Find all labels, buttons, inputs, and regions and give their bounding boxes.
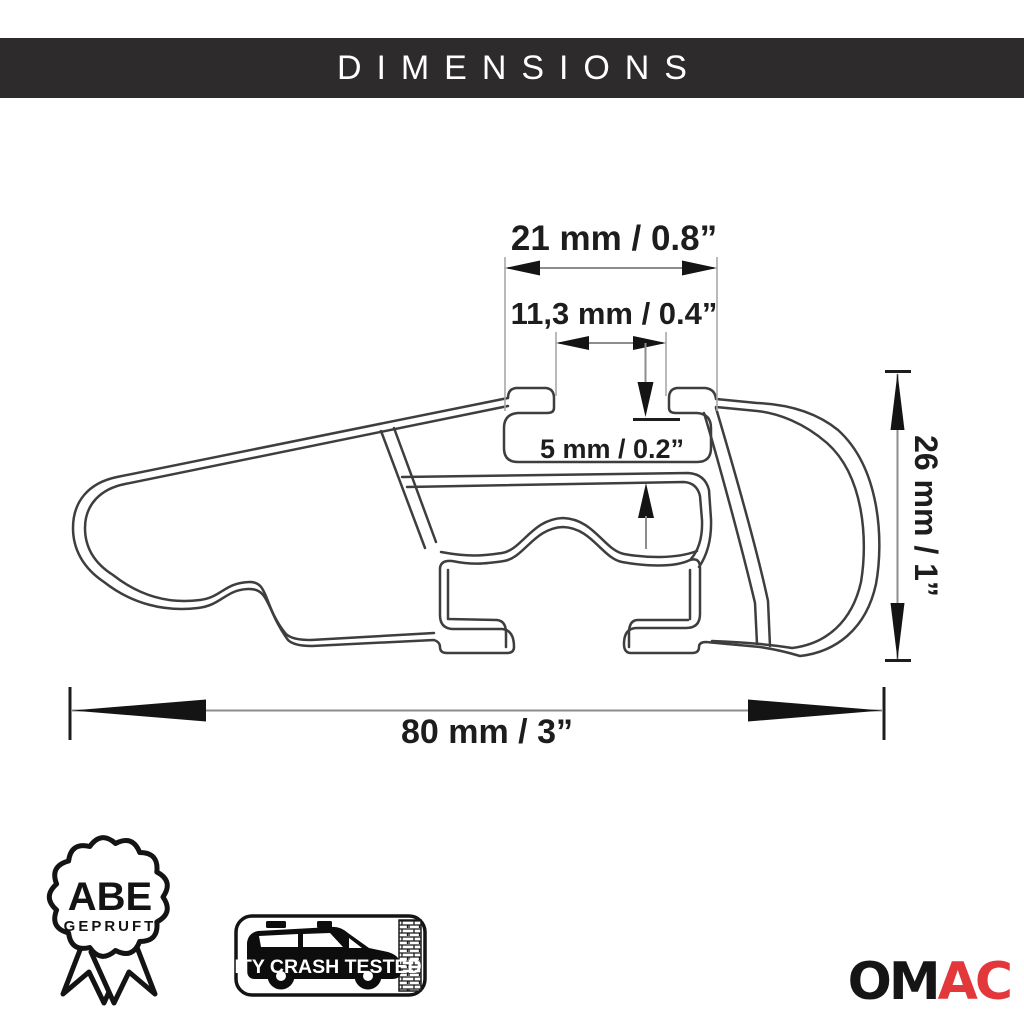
- profile-outline: [73, 388, 879, 656]
- dimension-label-wall-thickness: 5 mm / 0.2”: [540, 434, 684, 464]
- dimension-label-top-width: 21 mm / 0.8”: [511, 219, 717, 258]
- dimension-label-bar-height: 26 mm / 1”: [908, 435, 944, 597]
- dimension-bar-height: 26 mm / 1”: [885, 372, 944, 661]
- dimension-bar-width: 80 mm / 3”: [70, 687, 884, 751]
- profile-bottom-channel: [448, 570, 690, 647]
- brand-logo-om: OM: [848, 952, 938, 1012]
- abe-subtitle: GEPRUFT: [64, 918, 157, 935]
- abe-title: ABE: [68, 875, 152, 919]
- abe-badge: ABE GEPRUFT: [49, 838, 167, 1003]
- crash-test-badge: CITY CRASH TESTED: [220, 916, 425, 995]
- profile-rib-right: [704, 408, 770, 646]
- dimension-diagram: 21 mm / 0.8” 11,3 mm / 0.4” 5 mm / 0.2”: [0, 0, 1024, 1024]
- dimension-slot-width: 11,3 mm / 0.4”: [511, 296, 718, 350]
- crash-badge-label: CITY CRASH TESTED: [220, 956, 421, 978]
- brand-logo: OMAC: [848, 956, 1010, 1008]
- brand-logo-ac: AC: [938, 952, 1010, 1012]
- dimension-label-bar-width: 80 mm / 3”: [401, 713, 573, 751]
- product-dimensions-infographic: DIMENSIONS: [0, 0, 1024, 1024]
- dimension-top-width: 21 mm / 0.8”: [505, 219, 717, 276]
- crossbar-profile: [73, 388, 879, 656]
- profile-hump-channel: [441, 518, 697, 557]
- dimension-label-slot-width: 11,3 mm / 0.4”: [511, 296, 718, 331]
